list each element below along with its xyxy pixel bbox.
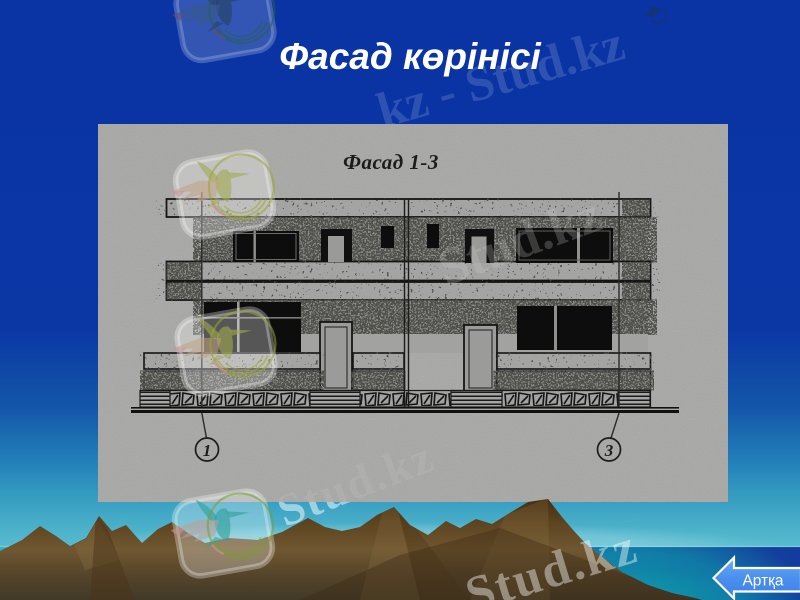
svg-text:Фасад 1-3: Фасад 1-3 — [343, 150, 439, 174]
svg-text:Фасад көрінісі: Фасад көрінісі — [279, 36, 541, 77]
svg-text:1: 1 — [203, 441, 212, 460]
svg-text:Артқа: Артқа — [742, 573, 783, 590]
svg-text:3: 3 — [604, 441, 614, 460]
